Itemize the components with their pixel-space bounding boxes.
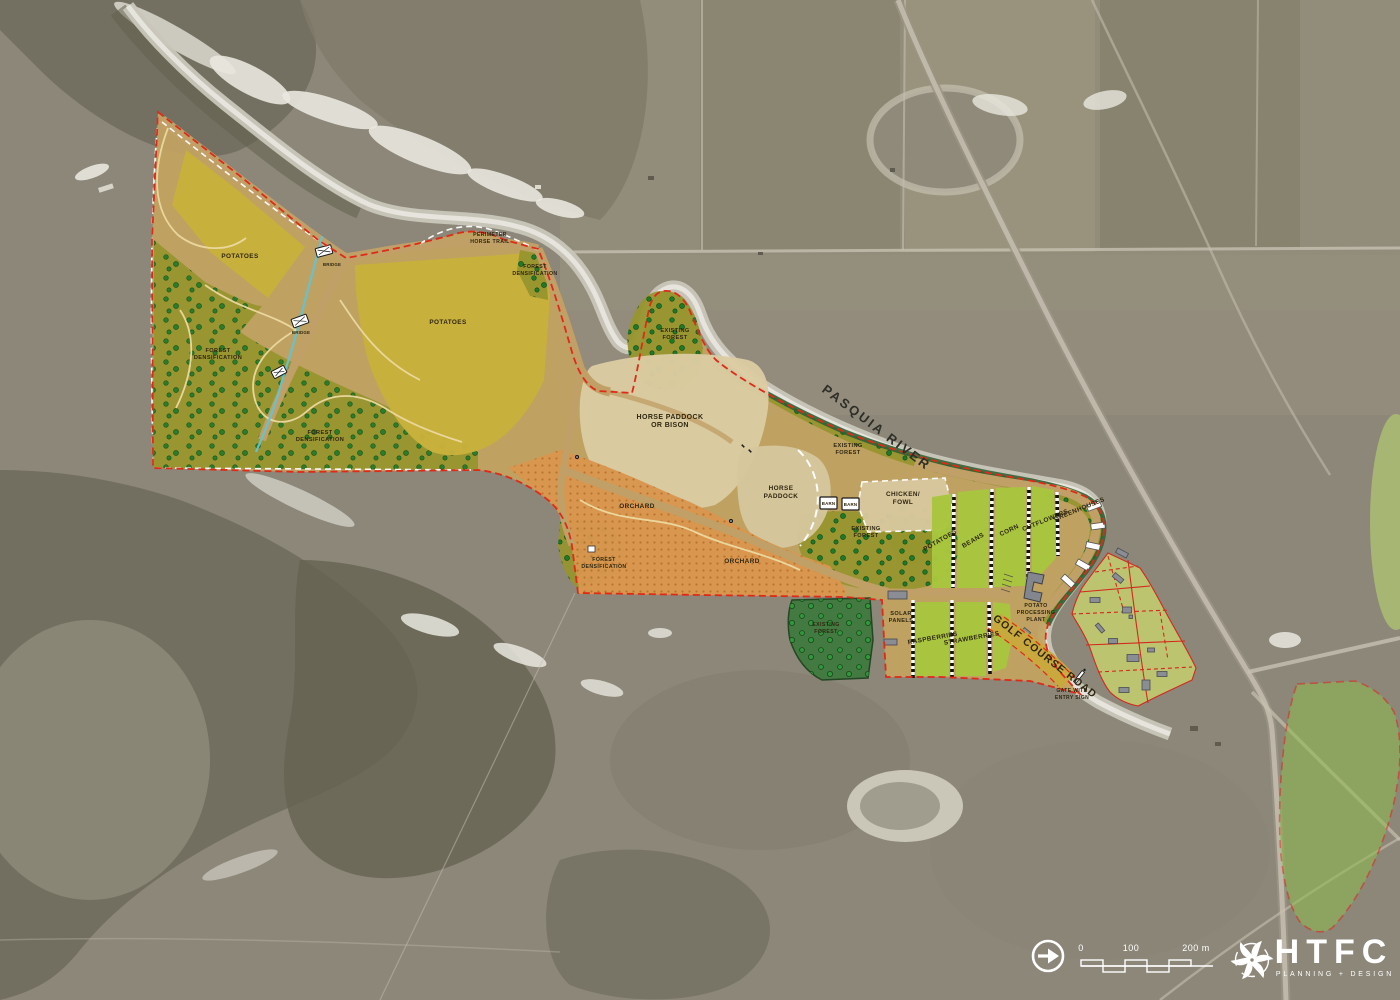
svg-text:DENSIFICATION: DENSIFICATION <box>512 271 557 277</box>
svg-text:OR BISON: OR BISON <box>651 422 689 429</box>
label-barn-2: BARN <box>844 502 857 507</box>
scale-two-hundred: 200 m <box>1182 943 1210 953</box>
scale-zero: 0 <box>1078 943 1084 953</box>
label-existing-forest-4: EXISTING FOREST <box>812 622 839 635</box>
svg-text:EXISTING: EXISTING <box>812 622 839 628</box>
label-potatoes-nw: POTATOES <box>221 253 259 260</box>
label-bridge-1: BRIDGE <box>323 262 341 267</box>
label-horse-paddock: HORSE PADDOCK <box>764 485 799 500</box>
svg-text:CHICKEN/: CHICKEN/ <box>886 491 920 498</box>
label-orchard-2: ORCHARD <box>724 558 759 565</box>
svg-text:FOREST: FOREST <box>662 335 687 341</box>
htfc-logo-name: HTFC <box>1275 933 1394 971</box>
svg-text:FOREST: FOREST <box>835 450 860 456</box>
svg-text:HORSE: HORSE <box>769 485 794 492</box>
svg-text:DENSIFICATION: DENSIFICATION <box>296 437 344 443</box>
svg-text:PADDOCK: PADDOCK <box>764 493 799 500</box>
svg-text:POTATO: POTATO <box>1024 603 1047 609</box>
label-barn-1: BARN <box>822 501 835 506</box>
label-gate-entry-sign: GATE WITH ENTRY SIGN <box>1055 688 1089 701</box>
svg-text:FOREST: FOREST <box>307 430 332 436</box>
svg-text:SOLAR: SOLAR <box>890 611 912 617</box>
svg-text:DENSIFICATION: DENSIFICATION <box>194 355 242 361</box>
svg-text:FOREST: FOREST <box>523 264 547 270</box>
svg-text:EXISTING: EXISTING <box>851 526 880 532</box>
svg-text:GATE WITH: GATE WITH <box>1056 688 1087 694</box>
svg-text:FOREST: FOREST <box>592 557 616 563</box>
label-perimeter-horse-trail: PERIMETER HORSE TRAIL <box>470 232 510 245</box>
svg-text:FOREST: FOREST <box>853 533 878 539</box>
svg-text:PERIMETER: PERIMETER <box>473 232 507 238</box>
label-existing-forest-2: EXISTING FOREST <box>833 443 862 456</box>
svg-text:PANELS: PANELS <box>889 618 914 624</box>
svg-text:FOREST: FOREST <box>814 629 838 635</box>
label-existing-forest-1: EXISTING FOREST <box>660 328 689 341</box>
label-bridge-2: BRIDGE <box>292 330 310 335</box>
svg-text:PLANT: PLANT <box>1026 617 1046 623</box>
htfc-logo-tagline: PLANNING + DESIGN <box>1276 971 1394 978</box>
svg-text:PROCESSING: PROCESSING <box>1017 610 1056 616</box>
svg-text:FOREST: FOREST <box>205 348 230 354</box>
svg-text:EXISTING: EXISTING <box>660 328 689 334</box>
svg-text:EXISTING: EXISTING <box>833 443 862 449</box>
svg-text:HORSE TRAIL: HORSE TRAIL <box>470 239 510 245</box>
site-plan-map: POTATOES POTATOES BRIDGE BRIDGE PERIMETE… <box>0 0 1400 1000</box>
label-orchard-1: ORCHARD <box>619 503 654 510</box>
svg-text:ENTRY SIGN: ENTRY SIGN <box>1055 695 1089 701</box>
scale-hundred: 100 <box>1123 943 1140 953</box>
svg-text:HORSE PADDOCK: HORSE PADDOCK <box>637 414 704 421</box>
label-solar-panels: SOLAR PANELS <box>889 611 914 624</box>
svg-text:FOWL: FOWL <box>893 499 913 506</box>
pond-water <box>860 782 940 830</box>
svg-text:DENSIFICATION: DENSIFICATION <box>581 564 626 570</box>
label-potatoes-n: POTATOES <box>429 319 467 326</box>
label-existing-forest-3: EXISTING FOREST <box>851 526 880 539</box>
